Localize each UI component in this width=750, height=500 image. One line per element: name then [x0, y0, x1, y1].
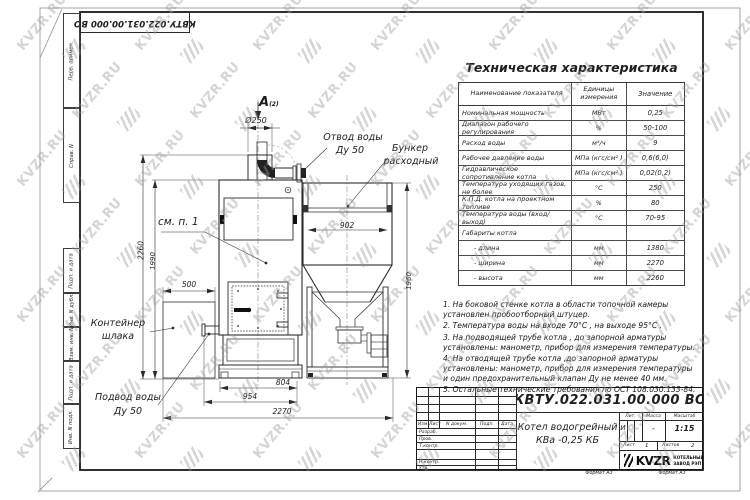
spec-table-cell: м³/ч — [572, 136, 627, 150]
note-item: 2. Температура воды на входе 70°С , на в… — [443, 321, 697, 331]
spec-table-row: К.П.Д. котла на проектном топливе%80 — [459, 196, 684, 211]
margin-box-sprav-n: Справ. N — [63, 108, 80, 203]
rev-header-data: Дата — [501, 422, 513, 427]
spec-table-row: - длинамм1380 — [459, 241, 684, 256]
product-name-line1: Котел водогрейный — [516, 421, 619, 434]
rev-header-list: Лист — [429, 422, 441, 427]
spec-table-cell: 0,6(6,0) — [627, 151, 684, 165]
water-outlet-label-2: Ду 50 — [319, 145, 381, 156]
lit-value: И — [619, 424, 627, 432]
spec-table-cell: % — [572, 196, 627, 210]
water-outlet-pipe — [257, 160, 306, 182]
feeder-motor — [371, 335, 387, 357]
sign-row-nkontr: Н.контр. — [419, 460, 440, 465]
spec-table-row: Рабочее давление водыМПа (кгс/см² )0,6(6… — [459, 151, 684, 166]
kvzr-logo-text: KVZR — [636, 454, 671, 468]
margin-label: Справ. N — [69, 144, 75, 168]
water-inlet-nozzle — [202, 324, 219, 336]
margin-box-podp-data-1: Подп. и дата — [63, 248, 80, 293]
scale-label: Масштаб — [665, 414, 704, 419]
spec-table-header: Наименование показателя Единицы измерени… — [459, 83, 684, 106]
dim-total-width: 2270 — [260, 407, 304, 416]
sign-row-utv: Утв. — [419, 466, 429, 471]
spec-table-cell: Расход воды — [459, 136, 572, 150]
sign-row-prov: Пров. — [419, 437, 432, 442]
spec-table-cell: 80 — [627, 196, 684, 210]
margin-box-podp-data-2: Подп. и дата — [63, 361, 80, 404]
dim-body-width: 804 — [263, 378, 303, 387]
spec-col-header: Значение — [627, 83, 684, 105]
see-note-label: см. п. 1 — [158, 216, 199, 228]
spec-table-cell: МПа (кгс/см² ) — [572, 166, 627, 180]
margin-label: Инв. N дубл. — [69, 293, 75, 327]
spec-table-cell: - длина — [459, 241, 572, 255]
spec-table-cell: Диапазон рабочего регулирования — [459, 121, 572, 135]
spec-table-row: Диапазон рабочего регулирования%50-100 — [459, 121, 684, 136]
note-item: 4. На отводящей трубе котла ,до запорной… — [443, 354, 697, 385]
note-item: 1. На боковой стенке котла в области топ… — [443, 300, 697, 320]
spec-table-row: Гидравлическое сопротивление котлаМПа (к… — [459, 166, 684, 181]
company-name-line2: ЗАВОД РЭП — [673, 461, 704, 466]
spec-col-header: Единицы измерения — [572, 83, 627, 105]
boiler-base — [219, 335, 302, 378]
spec-table-cell: °С — [572, 181, 627, 195]
top-designation-stamp: КВТУ.022.031.00.000 ВО — [80, 12, 190, 33]
spec-table-cell: Номинальная мощность — [459, 106, 572, 120]
company-name: КОТЕЛЬНЫЙ ЗАВОД РЭП — [673, 455, 704, 466]
mass-value: - — [642, 424, 665, 433]
hopper-label-1: Бункер — [380, 143, 440, 154]
margin-label: Перв. примен. — [69, 41, 75, 80]
spec-table-cell: 70-95 — [627, 211, 684, 225]
spec-table-cell: Температура воды (вход/выход) — [459, 211, 572, 225]
spec-col-header: Наименование показателя — [459, 83, 572, 105]
margin-box-perv-primen: Перв. примен. — [63, 13, 80, 108]
spec-table-title: Техническая характеристика — [458, 60, 685, 75]
dim-chimney-diameter: Ø250 — [238, 116, 274, 125]
technical-notes: 1. На боковой стенке котла в области топ… — [443, 300, 697, 397]
slag-container-outline — [163, 302, 215, 378]
slag-container-label-2: шлака — [86, 331, 150, 342]
note-item: 3. На подводящей трубе котла , до запорн… — [443, 333, 697, 353]
spec-table-cell: 0,02(0,2) — [627, 166, 684, 180]
spec-table-cell: 1380 — [627, 241, 684, 255]
spec-table-cell: Гидравлическое сопротивление котла — [459, 166, 572, 180]
upper-door — [224, 198, 293, 240]
spec-table-cell: мм — [572, 256, 626, 270]
slag-container-label-1: Контейнер — [86, 318, 150, 329]
product-name-line2: КВа -0,25 КБ — [516, 434, 619, 447]
spec-table-cell: 50-100 — [627, 121, 684, 135]
spec-table-cell: Температура уходящих газов, не более — [459, 181, 572, 195]
spec-table-row: - ширинамм2270 — [459, 256, 684, 271]
spec-table-cell: 0,25 — [627, 106, 684, 120]
kvzr-logo-icon — [624, 454, 633, 467]
margin-box-inv-dubl: Инв. N дубл. — [63, 293, 80, 327]
door-handle — [234, 308, 249, 312]
rev-header-podp: Подп. — [480, 422, 494, 427]
sign-row-tkontr: Т.контр. — [419, 444, 439, 449]
company-logo-cell: KVZR КОТЕЛЬНЫЙ ЗАВОД РЭП — [619, 450, 704, 471]
spec-table-row: Температура воды (вход/выход)°С70-95 — [459, 211, 684, 226]
spec-table-row: Номинальная мощностьМВт0,25 — [459, 106, 684, 121]
title-block: КВТУ.022.031.00.000 ВО Изм. Лист N докум… — [416, 387, 703, 470]
margin-label: Подп. и дата — [69, 253, 75, 288]
company-name-line1: КОТЕЛЬНЫЙ — [673, 455, 704, 460]
spec-table-cell — [572, 226, 627, 240]
lit-label: Лит. — [619, 414, 642, 419]
water-outlet-label-1: Отвод воды — [319, 132, 387, 143]
water-inlet-label-2: Ду 50 — [92, 406, 164, 417]
spec-table-cell: - ширина — [459, 256, 572, 270]
engineering-drawing-sheet: КВТУ.022.031.00.000 ВО Перв. примен. Спр… — [0, 0, 750, 500]
spec-table-cell: 9 — [627, 136, 684, 150]
sheet-value: 1 — [645, 443, 649, 449]
spec-table-cell: 2260 — [627, 271, 684, 285]
view-letter: А — [259, 95, 269, 110]
rev-header-ndokum: N докум. — [446, 422, 467, 427]
margin-box-inv-podl: Инв. N подл. — [63, 404, 80, 449]
sheets-value: 2 — [691, 443, 695, 449]
margin-label: Инв. N подл. — [69, 409, 75, 443]
view-a-label: А(2) — [259, 95, 279, 110]
spec-table-cell: Рабочее давление воды — [459, 151, 572, 165]
spec-table-row: Температура уходящих газов, не более°С25… — [459, 181, 684, 196]
spec-table-cell: Габариты котла — [459, 226, 572, 240]
spec-table-cell — [627, 226, 684, 240]
dim-hopper-width: 902 — [327, 221, 367, 230]
spec-table-cell: МПа (кгс/см² ) — [572, 151, 627, 165]
margin-label: Подп. и дата — [69, 365, 75, 400]
spec-table-row: Габариты котла — [459, 226, 684, 241]
spec-table-cell: мм — [572, 271, 626, 285]
margin-box-vzam-inv: Взам. инв. N — [63, 327, 80, 361]
format-label-left: Формат А3 — [574, 471, 624, 476]
dim-container-width: 500 — [169, 280, 209, 289]
dim-height-total: 2260 — [137, 231, 146, 271]
spec-table-cell: К.П.Д. котла на проектном топливе — [459, 196, 572, 210]
margin-label: Взам. инв. N — [69, 327, 75, 361]
spec-table-cell: 2270 — [627, 256, 684, 270]
view-sheet-ref: (2) — [269, 101, 279, 108]
rev-header-izm: Изм. — [418, 422, 429, 427]
spec-table-cell: °С — [572, 211, 627, 225]
spec-table-cell: 250 — [627, 181, 684, 195]
spec-table-cell: - высота — [459, 271, 572, 285]
hopper-outlet — [338, 330, 361, 343]
technical-characteristics-table: Наименование показателя Единицы измерени… — [458, 82, 685, 286]
top-designation-text: КВТУ.022.031.00.000 ВО — [74, 18, 196, 28]
dim-height-body: 1990 — [149, 241, 157, 281]
mass-label: Масса — [642, 414, 665, 419]
sign-row-razrab: Разраб. — [419, 430, 437, 435]
hopper-label-2: расходный — [377, 156, 445, 167]
hopper-frame — [307, 287, 388, 378]
sheet-label: Лист — [623, 443, 635, 448]
spec-table-cell: % — [572, 121, 627, 135]
spec-table-cell: мм — [572, 241, 626, 255]
dim-hopper-height: 1960 — [405, 261, 413, 301]
boiler-body — [219, 180, 302, 335]
spec-table-row: Расход водым³/ч9 — [459, 136, 684, 151]
dim-body-width-2: 954 — [230, 392, 270, 401]
format-label-right: Формат А3 — [647, 471, 697, 476]
designation-cell: КВТУ.022.031.00.000 ВО — [516, 388, 704, 412]
leader-lines — [150, 148, 388, 405]
spec-table-row: - высотамм2260 — [459, 271, 684, 285]
spec-table-body: Номинальная мощностьМВт0,25Диапазон рабо… — [459, 106, 684, 285]
sheets-label: Листов — [662, 443, 679, 448]
spec-table-cell: МВт — [572, 106, 627, 120]
water-inlet-label-1: Подвод воды — [92, 392, 164, 403]
scale-value: 1:15 — [665, 424, 704, 433]
fuel-hopper — [303, 183, 392, 302]
product-name-cell: Котел водогрейный КВа -0,25 КБ — [516, 412, 619, 471]
